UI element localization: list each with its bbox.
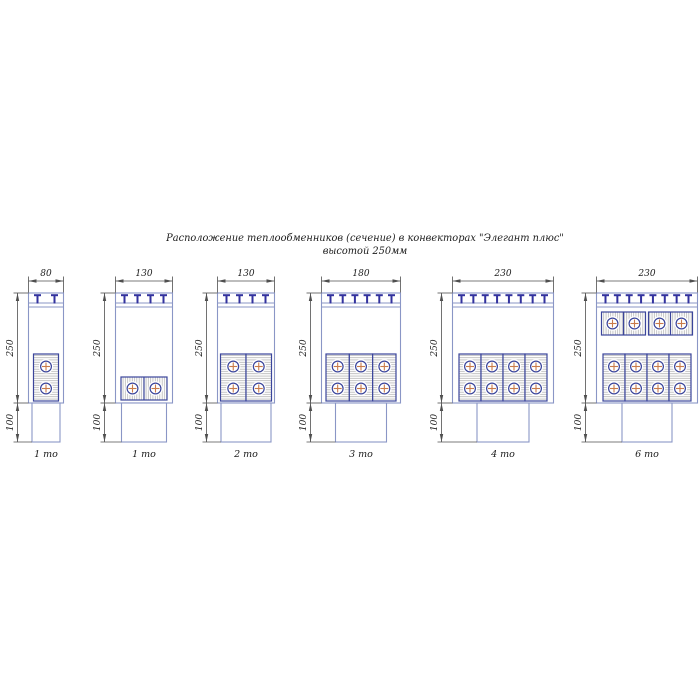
slat-stem bbox=[391, 296, 393, 304]
width-dimension-value: 80 bbox=[40, 269, 52, 279]
convector-section-diagrams: 802501001 то1302501001 то1302501002 то18… bbox=[0, 0, 700, 700]
dimension-arrow bbox=[597, 279, 605, 282]
heat-exchanger-row bbox=[121, 377, 167, 400]
base-dimension-value: 100 bbox=[195, 414, 205, 431]
base-duct bbox=[32, 403, 60, 442]
dimension-arrow bbox=[309, 293, 312, 301]
dimension-arrow bbox=[205, 403, 208, 411]
dimension-arrow bbox=[103, 293, 106, 301]
convector-180-3to: 1802501003 то bbox=[299, 269, 401, 460]
convector-130-2to: 1302501002 то bbox=[195, 269, 275, 460]
width-dimension-value: 130 bbox=[237, 269, 254, 279]
convector-230-6to: 2302501006 то bbox=[574, 269, 698, 460]
slat-stem bbox=[652, 296, 654, 304]
slat-stem bbox=[354, 296, 356, 304]
slat-stem bbox=[508, 296, 510, 304]
slat-stem bbox=[366, 296, 368, 304]
dimension-arrow bbox=[16, 293, 19, 301]
dimension-arrow bbox=[16, 395, 19, 403]
type-label: 4 то bbox=[490, 449, 515, 460]
height-dimension-value: 250 bbox=[574, 339, 584, 357]
slat-stem bbox=[330, 296, 332, 304]
dimension-arrow bbox=[584, 293, 587, 301]
dimension-arrow bbox=[584, 395, 587, 403]
slat-stem bbox=[676, 296, 678, 304]
height-dimension-value: 250 bbox=[93, 339, 103, 357]
base-dimension-value: 100 bbox=[430, 414, 440, 431]
dimension-arrow bbox=[29, 279, 37, 282]
dimension-arrow bbox=[205, 395, 208, 403]
dimension-arrow bbox=[16, 403, 19, 411]
dimension-arrow bbox=[205, 293, 208, 301]
dimension-arrow bbox=[103, 395, 106, 403]
slat-stem bbox=[124, 296, 126, 304]
base-duct bbox=[622, 403, 672, 442]
heat-exchanger-row bbox=[34, 354, 59, 401]
slat-stem bbox=[37, 296, 39, 304]
slat-stem bbox=[378, 296, 380, 304]
type-label: 1 то bbox=[34, 449, 58, 460]
heat-exchanger-row bbox=[326, 354, 396, 401]
slat-stem bbox=[544, 296, 546, 304]
dimension-arrow bbox=[103, 403, 106, 411]
dimension-arrow bbox=[322, 279, 330, 282]
width-dimension: 180 bbox=[322, 269, 401, 293]
base-dimension-value: 100 bbox=[574, 414, 584, 431]
slat-stem bbox=[461, 296, 463, 304]
slat-stem bbox=[532, 296, 534, 304]
width-dimension-value: 130 bbox=[135, 269, 152, 279]
base-dimension-value: 100 bbox=[299, 414, 309, 431]
width-dimension: 130 bbox=[218, 269, 275, 293]
dimension-arrow bbox=[453, 279, 461, 282]
dimension-arrow bbox=[218, 279, 226, 282]
dimension-arrow bbox=[546, 279, 554, 282]
type-label: 2 то bbox=[233, 449, 258, 460]
dimension-arrow bbox=[440, 395, 443, 403]
base-dimension-value: 100 bbox=[6, 414, 16, 431]
dimension-arrow bbox=[165, 279, 173, 282]
slat-stem bbox=[239, 296, 241, 304]
width-dimension-value: 230 bbox=[493, 269, 511, 279]
slat-stem bbox=[137, 296, 139, 304]
slat-stem bbox=[265, 296, 267, 304]
base-duct bbox=[477, 403, 529, 442]
convector-80-1to: 802501001 то bbox=[6, 269, 64, 460]
slat-stem bbox=[496, 296, 498, 304]
width-dimension-value: 230 bbox=[637, 269, 655, 279]
dimension-arrow bbox=[309, 434, 312, 442]
dimension-arrow bbox=[205, 434, 208, 442]
dimension-arrow bbox=[393, 279, 401, 282]
dimension-arrow bbox=[584, 403, 587, 411]
dimension-arrow bbox=[440, 434, 443, 442]
height-dimension-value: 250 bbox=[430, 339, 440, 357]
width-dimension: 130 bbox=[116, 269, 173, 293]
base-duct bbox=[221, 403, 271, 442]
heat-exchanger-row bbox=[459, 354, 547, 401]
slat-stem bbox=[688, 296, 690, 304]
dimension-arrow bbox=[309, 403, 312, 411]
slat-stem bbox=[472, 296, 474, 304]
heat-exchanger-row bbox=[603, 354, 691, 401]
type-label: 1 то bbox=[132, 449, 156, 460]
dimension-arrow bbox=[16, 434, 19, 442]
dimension-arrow bbox=[56, 279, 64, 282]
convector-230-4to: 2302501004 то bbox=[430, 269, 554, 460]
type-label: 6 то bbox=[635, 449, 659, 460]
slat-stem bbox=[616, 296, 618, 304]
base-duct bbox=[122, 403, 167, 442]
slat-stem bbox=[520, 296, 522, 304]
dimension-arrow bbox=[267, 279, 275, 282]
dimension-arrow bbox=[584, 434, 587, 442]
base-duct bbox=[336, 403, 387, 442]
dimension-arrow bbox=[440, 293, 443, 301]
slat-stem bbox=[252, 296, 254, 304]
heat-exchanger-row bbox=[221, 354, 272, 401]
slat-stem bbox=[226, 296, 228, 304]
width-dimension: 230 bbox=[453, 269, 554, 293]
slat-stem bbox=[342, 296, 344, 304]
dimension-arrow bbox=[309, 395, 312, 403]
dimension-arrow bbox=[440, 403, 443, 411]
slat-stem bbox=[640, 296, 642, 304]
dimension-arrow bbox=[116, 279, 124, 282]
slat-stem bbox=[163, 296, 165, 304]
slat-stem bbox=[484, 296, 486, 304]
slat-stem bbox=[664, 296, 666, 304]
dimension-arrow bbox=[690, 279, 698, 282]
slat-stem bbox=[628, 296, 630, 304]
convector-130-1to: 1302501001 то bbox=[93, 269, 173, 460]
width-dimension: 80 bbox=[29, 269, 64, 293]
height-dimension-value: 250 bbox=[195, 339, 205, 357]
slat-stem bbox=[150, 296, 152, 304]
width-dimension: 230 bbox=[597, 269, 698, 293]
slat-stem bbox=[605, 296, 607, 304]
width-dimension-value: 180 bbox=[352, 269, 369, 279]
slat-stem bbox=[54, 296, 56, 304]
dimension-arrow bbox=[103, 434, 106, 442]
base-dimension-value: 100 bbox=[93, 414, 103, 431]
technical-drawing-canvas: Расположение теплообменников (сечение) в… bbox=[0, 0, 700, 700]
type-label: 3 то bbox=[349, 449, 373, 460]
height-dimension-value: 250 bbox=[6, 339, 16, 357]
height-dimension-value: 250 bbox=[299, 339, 309, 357]
